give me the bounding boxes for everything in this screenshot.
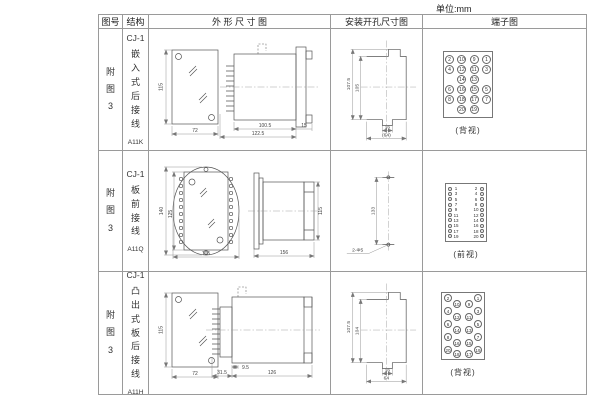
- terminal-row: 1920: [448, 234, 484, 239]
- terminal-number: 14: [472, 218, 480, 223]
- mounting-drawing-row1: 107.5 105 16 (64): [331, 34, 422, 146]
- terminal-number: 4: [472, 191, 480, 196]
- terminal-number: 11: [452, 213, 460, 218]
- hook-outline: [258, 44, 266, 54]
- fig-no-label: 附图3: [105, 185, 116, 236]
- terminal-circle: 16: [457, 85, 466, 94]
- dim-label: 156: [279, 250, 288, 256]
- terminal-circle: 1: [482, 55, 491, 64]
- document-page: 单位:mm 图号 结构 外 形 尺 寸 图 安装开孔尺寸图 端子图 附图3 CJ…: [0, 0, 600, 400]
- mounting-cell-row1: 107.5 105 16 (64): [331, 29, 423, 151]
- terminal-number: 7: [452, 202, 460, 207]
- dim-label: (64): [382, 132, 391, 138]
- spec-table: 图号 结构 外 形 尺 寸 图 安装开孔尺寸图 端子图 附图3 CJ-1 嵌入式…: [98, 14, 587, 395]
- terminal-circle: 12: [457, 65, 466, 74]
- terminal-cell-row3: 2 4 6 8 20 10 12 14 16 18 9 11 13 15 17 …: [423, 272, 586, 394]
- dim-label: 140: [159, 207, 165, 216]
- terminal-box: 12 34 56 78 910 1112 1314 1516 1718 1920: [445, 183, 487, 242]
- terminal-circle: 6: [444, 320, 452, 328]
- terminal-cell-row1: 21091 412113 1413 616155 818177: [423, 29, 586, 151]
- dim-label: 2-Φ5: [352, 248, 363, 254]
- outline-drawing-row3: 115 72 9.5 31.5 126: [156, 277, 324, 389]
- terminal-circle: 4: [444, 307, 452, 315]
- structure-label: 嵌入式后接线: [130, 48, 141, 132]
- dimensions: 107.5 105 16 (64): [346, 49, 406, 140]
- dim-label: 72: [192, 371, 198, 377]
- terminal-circle: 17: [465, 350, 473, 358]
- terminal-circle: 18: [457, 95, 466, 104]
- terminal-number: 18: [472, 229, 480, 234]
- terminal-box: 2 4 6 8 20 10 12 14 16 18 9 11 13 15 17 …: [441, 292, 485, 360]
- dim-label: 64: [384, 375, 390, 381]
- terminal-circle: 11: [465, 313, 473, 321]
- terminal-number: 1: [452, 186, 460, 191]
- terminal-circle: 7: [474, 333, 482, 341]
- header-mounting: 安装开孔尺寸图: [331, 15, 423, 29]
- terminal-circle: 10: [453, 300, 461, 308]
- terminal-circle: 13: [465, 326, 473, 334]
- terminal-number: 10: [472, 207, 480, 212]
- terminal-circle: 16: [453, 339, 461, 347]
- terminal-circle: 9: [465, 300, 473, 308]
- dim-label: 122.5: [251, 131, 264, 137]
- dim-label: 107.5: [346, 77, 352, 90]
- view-label: (背视): [450, 367, 475, 378]
- dimensions: 107.5 104 16 64: [346, 292, 406, 383]
- terminal-row: 1413: [445, 75, 491, 84]
- dim-label: 115: [158, 326, 164, 334]
- dimensions: 115 72 100.5 122.5 15: [158, 50, 312, 139]
- terminal-number: 16: [472, 223, 480, 228]
- header-structure: 结构: [123, 15, 149, 29]
- outline-cell-row3: 115 72 9.5 31.5 126: [149, 272, 331, 394]
- terminal-number: 8: [472, 202, 480, 207]
- outline-cell-row2: 140 125 105 156 115: [149, 151, 331, 272]
- terminal-circle: 20: [444, 346, 452, 354]
- terminal-circle: 8: [445, 95, 454, 104]
- hook-outline: [238, 287, 246, 297]
- code-label: A11H: [128, 389, 144, 394]
- header-fig-no: 图号: [99, 15, 123, 29]
- fig-no-cell-row1: 附图3: [99, 29, 123, 151]
- structure-label: 板前接线: [130, 184, 141, 240]
- terminal-circle: [480, 229, 484, 233]
- model-label: CJ-1: [127, 272, 145, 280]
- outline-drawing-row2: 140 125 105 156 115: [156, 161, 324, 261]
- dim-label: 115: [318, 207, 324, 215]
- dim-label: 100.5: [258, 123, 271, 129]
- header-outline: 外 形 尺 寸 图: [149, 15, 331, 29]
- mounting-drawing-row3: 107.5 104 16 64: [331, 277, 422, 389]
- terminal-circle: [480, 218, 484, 222]
- terminal-number: 12: [472, 213, 480, 218]
- terminal-circle: [480, 224, 484, 228]
- outline-drawing-row1: 115 72 100.5 122.5 15: [156, 34, 324, 146]
- terminal-circle: 14: [457, 75, 466, 84]
- structure-cell-row2: CJ-1 板前接线 A11Q: [123, 151, 149, 272]
- terminal-number: 6: [472, 197, 480, 202]
- dim-label: 133: [371, 207, 377, 215]
- terminal-number: 5: [452, 197, 460, 202]
- terminal-circle: 10: [457, 55, 466, 64]
- terminal-circle: 2: [444, 294, 452, 302]
- fig-no-label: 附图3: [105, 64, 116, 115]
- terminal-circle: 14: [453, 326, 461, 334]
- terminal-circle: 7: [482, 95, 491, 104]
- terminal-circle: 5: [482, 85, 491, 94]
- terminal-number: 2: [472, 186, 480, 191]
- terminal-number: 17: [452, 229, 460, 234]
- mounting-drawing-row2: 133 2-Φ5: [331, 161, 422, 261]
- terminal-row: 818177: [445, 95, 491, 104]
- terminal-circle: 4: [445, 65, 454, 74]
- dim-label: 105: [355, 83, 361, 91]
- dim-label: 9.5: [242, 365, 249, 371]
- front-view: [172, 50, 218, 124]
- terminal-number: 3: [452, 191, 460, 196]
- dim-label: 104: [355, 327, 361, 335]
- terminal-number: 20: [472, 234, 480, 239]
- outline-cell-row1: 115 72 100.5 122.5 15: [149, 29, 331, 151]
- dim-label: 16: [385, 124, 391, 130]
- terminal-circle: 13: [470, 75, 479, 84]
- terminal-number: 15: [452, 223, 460, 228]
- terminal-circle: [480, 203, 484, 207]
- front-view: [173, 167, 239, 255]
- header-terminal: 端子图: [423, 15, 586, 29]
- dim-label: 105: [201, 251, 210, 257]
- mounting-cell-row2: 133 2-Φ5: [331, 151, 423, 272]
- mounting-cell-row3: 107.5 104 16 64: [331, 272, 423, 394]
- fig-no-label: 附图3: [105, 307, 116, 358]
- dim-label: 72: [192, 128, 198, 134]
- terminal-circle: [480, 187, 484, 191]
- terminal-circle: 3: [482, 65, 491, 74]
- fig-no-cell-row3: 附图3: [99, 272, 123, 394]
- fig-no-cell-row2: 附图3: [99, 151, 123, 272]
- terminal-circle: 8: [444, 333, 452, 341]
- terminal-box: 21091 412113 1413 616155 818177: [443, 51, 493, 118]
- terminal-circle: 15: [470, 85, 479, 94]
- dim-label: 115: [158, 82, 164, 90]
- terminal-circle: 6: [445, 85, 454, 94]
- terminal-number: 19: [452, 234, 460, 239]
- terminal-cell-row2: 12 34 56 78 910 1112 1314 1516 1718 1920…: [423, 151, 586, 272]
- terminal-circle: 18: [453, 350, 461, 358]
- terminal-circle: 1: [474, 294, 482, 302]
- terminal-circle: 20: [457, 105, 466, 114]
- terminal-circle: 11: [470, 65, 479, 74]
- terminal-circle: 3: [474, 307, 482, 315]
- model-label: CJ-1: [127, 169, 145, 179]
- code-label: A11K: [128, 139, 143, 146]
- terminal-row: 2019: [445, 105, 491, 114]
- terminal-circle: 5: [474, 320, 482, 328]
- terminal-circle: 19: [470, 105, 479, 114]
- terminal-row: 412113: [445, 65, 491, 74]
- dim-label: 15: [301, 123, 307, 129]
- terminal-row: 21091: [445, 55, 491, 64]
- terminal-circle: 9: [470, 55, 479, 64]
- view-label: (前视): [453, 249, 478, 260]
- dimensions: 115 72 9.5 31.5 126: [158, 293, 312, 379]
- terminal-circle: 2: [445, 55, 454, 64]
- terminal-row: 616155: [445, 85, 491, 94]
- terminal-circle: 19: [474, 346, 482, 354]
- terminal-circle: [480, 234, 484, 238]
- terminal-circle: 17: [470, 95, 479, 104]
- dimensions: 133 2-Φ5: [347, 177, 389, 253]
- terminal-circle: 15: [465, 339, 473, 347]
- structure-cell-row3: CJ-1 凸出式板后接线 A11H: [123, 272, 149, 394]
- terminal-circle: [480, 197, 484, 201]
- dim-label: 31.5: [217, 370, 227, 376]
- terminal-circle: 12: [453, 313, 461, 321]
- model-label: CJ-1: [127, 33, 145, 43]
- structure-label: 凸出式板后接线: [130, 285, 141, 383]
- code-label: A11Q: [127, 246, 143, 253]
- terminal-circle: [480, 192, 484, 196]
- terminal-circle: [480, 213, 484, 217]
- dim-label: 107.5: [346, 321, 352, 334]
- terminal-number: 9: [452, 207, 460, 212]
- terminal-circle: [480, 208, 484, 212]
- terminal-number: 13: [452, 218, 460, 223]
- view-label: (背视): [455, 125, 480, 136]
- structure-cell-row1: CJ-1 嵌入式后接线 A11K: [123, 29, 149, 151]
- dim-label: 126: [267, 370, 276, 376]
- dim-label: 16: [385, 368, 391, 374]
